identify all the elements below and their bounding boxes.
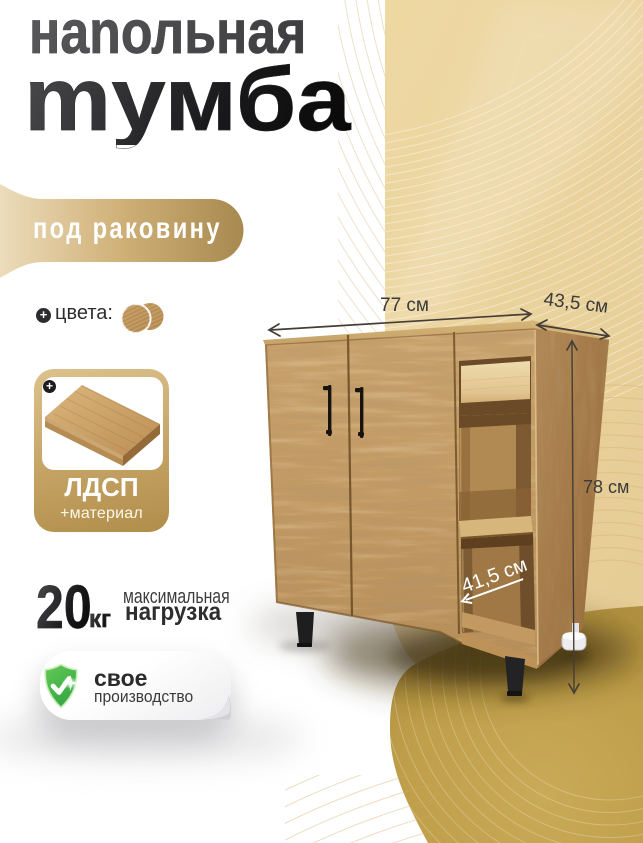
svg-text:78 см: 78 см [583,477,629,497]
svg-text:77 см: 77 см [380,295,429,316]
